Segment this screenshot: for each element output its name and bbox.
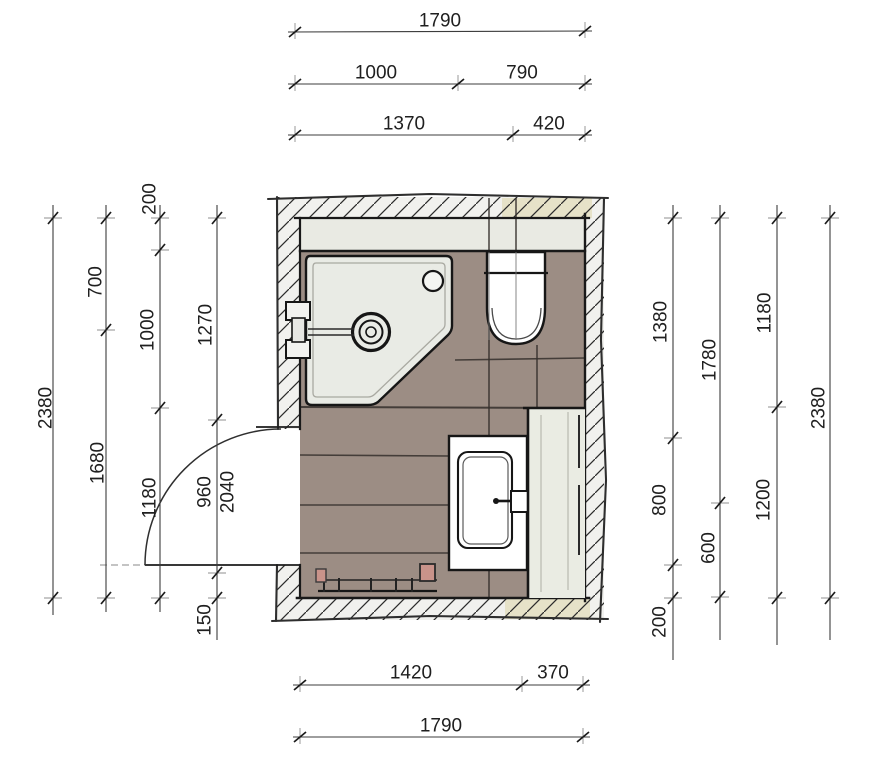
dim-label: 1000 xyxy=(355,63,397,84)
cabinet xyxy=(523,408,586,598)
dim-label-extra: 2040 xyxy=(218,471,239,513)
dimensions-bottom: 1420 370 1790 xyxy=(293,663,590,745)
dim-label: 370 xyxy=(537,663,569,684)
top-ledge-band xyxy=(300,218,585,251)
dim-label: 1790 xyxy=(419,11,461,32)
dim-label: 1380 xyxy=(651,301,672,343)
dim-label: 600 xyxy=(699,532,720,564)
dim-label: 790 xyxy=(506,63,538,84)
dim-label: 1200 xyxy=(754,479,775,521)
toilet xyxy=(484,252,548,344)
dim-label: 1370 xyxy=(383,114,425,135)
dim-label: 700 xyxy=(86,266,107,298)
dim-label: 2380 xyxy=(36,387,57,429)
floor-plan-drawing: 1790 1000 790 1370 420 1420 370 1790 238… xyxy=(0,0,882,769)
dimensions-left: 2380 700 1680 200 1000 1180 1270 960 204… xyxy=(36,183,239,640)
dim-label: 1180 xyxy=(140,478,161,519)
vanity xyxy=(449,436,529,570)
dim-label: 1000 xyxy=(138,309,159,351)
dim-label: 1270 xyxy=(196,304,217,346)
dim-label: 200 xyxy=(140,183,161,215)
dim-label: 960 xyxy=(195,476,216,508)
dim-label: 200 xyxy=(650,606,671,638)
dim-label: 1420 xyxy=(390,663,432,684)
cabinet-body xyxy=(528,408,585,598)
dimensions-top: 1790 1000 790 1370 420 xyxy=(288,11,592,143)
dim-label: 2380 xyxy=(809,387,830,429)
dim-label: 150 xyxy=(195,604,216,636)
dim-label: 1780 xyxy=(700,339,721,381)
dim-label: 800 xyxy=(650,484,671,516)
dim-label: 420 xyxy=(533,114,565,135)
shower-cap-icon xyxy=(423,271,443,291)
dim-label: 1790 xyxy=(420,716,462,737)
dim-label: 1180 xyxy=(755,293,776,334)
dim-label: 1680 xyxy=(88,442,109,484)
radiator-cap xyxy=(316,569,326,582)
dimensions-right: 1380 800 200 1780 600 1180 1200 2380 xyxy=(650,205,840,660)
door-opening-gap xyxy=(272,429,302,565)
radiator-valve xyxy=(420,564,435,581)
